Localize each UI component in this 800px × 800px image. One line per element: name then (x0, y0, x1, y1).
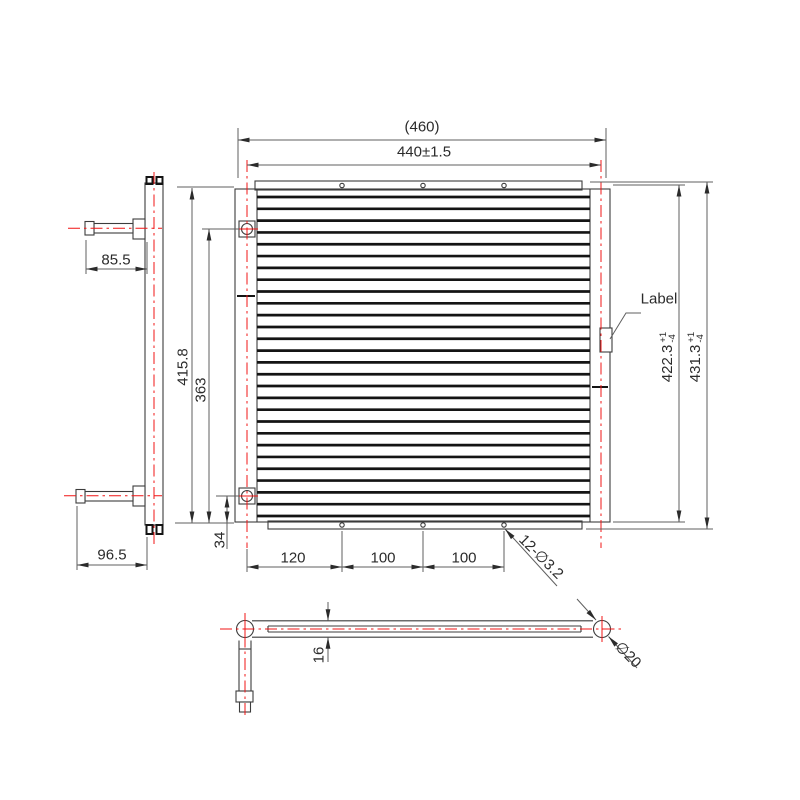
dim-overall-height-tolerance: +1-4 (687, 332, 705, 343)
coil-body-outline (235, 189, 610, 522)
bottom-tab (157, 525, 163, 534)
mounting-hole (502, 183, 506, 187)
dim-overall-width: (460) (404, 120, 439, 135)
dim-bottom-pipe-length: 96.5 (97, 548, 126, 563)
dim-coil-thickness: 16 (312, 647, 327, 664)
mounting-hole (421, 183, 425, 187)
leader-header-diameter (577, 599, 596, 620)
top-pipe-nut (133, 219, 145, 239)
dim-overall-height: 431.3+1-4 (687, 332, 705, 382)
dim-core-height: 422.3+1-4 (659, 332, 677, 382)
tube-lines (257, 197, 590, 516)
dim-port-bottom-offset: 34 (213, 532, 228, 549)
dim-side-height: 415.8 (176, 348, 191, 386)
dim-core-width: 440±1.5 (397, 145, 451, 160)
bottom-tab (147, 525, 153, 534)
front-view (235, 160, 612, 548)
label-tab (600, 328, 612, 352)
label-callout: Label (641, 292, 678, 307)
dim-hole-spacing-1: 120 (280, 551, 305, 566)
flange-holes (340, 183, 506, 527)
dim-hole-spacing-2: 100 (370, 551, 395, 566)
dim-hole-spacing-3: 100 (451, 551, 476, 566)
bottom-view (220, 613, 624, 718)
dim-core-height-value: 422.3 (659, 345, 676, 383)
dim-port-span: 363 (194, 377, 209, 402)
mounting-hole (340, 523, 344, 527)
side-view (64, 172, 163, 545)
mounting-hole (340, 183, 344, 187)
drawing-linework (0, 0, 800, 800)
dim-core-height-tolerance: +1-4 (659, 332, 677, 343)
technical-drawing: (460) 440±1.5 85.5 96.5 415.8 363 34 422… (0, 0, 800, 800)
dim-top-pipe-length: 85.5 (101, 253, 130, 268)
leader-label (610, 313, 641, 339)
dim-overall-height-value: 431.3 (687, 345, 704, 383)
mounting-hole (421, 523, 425, 527)
mounting-hole (502, 523, 506, 527)
